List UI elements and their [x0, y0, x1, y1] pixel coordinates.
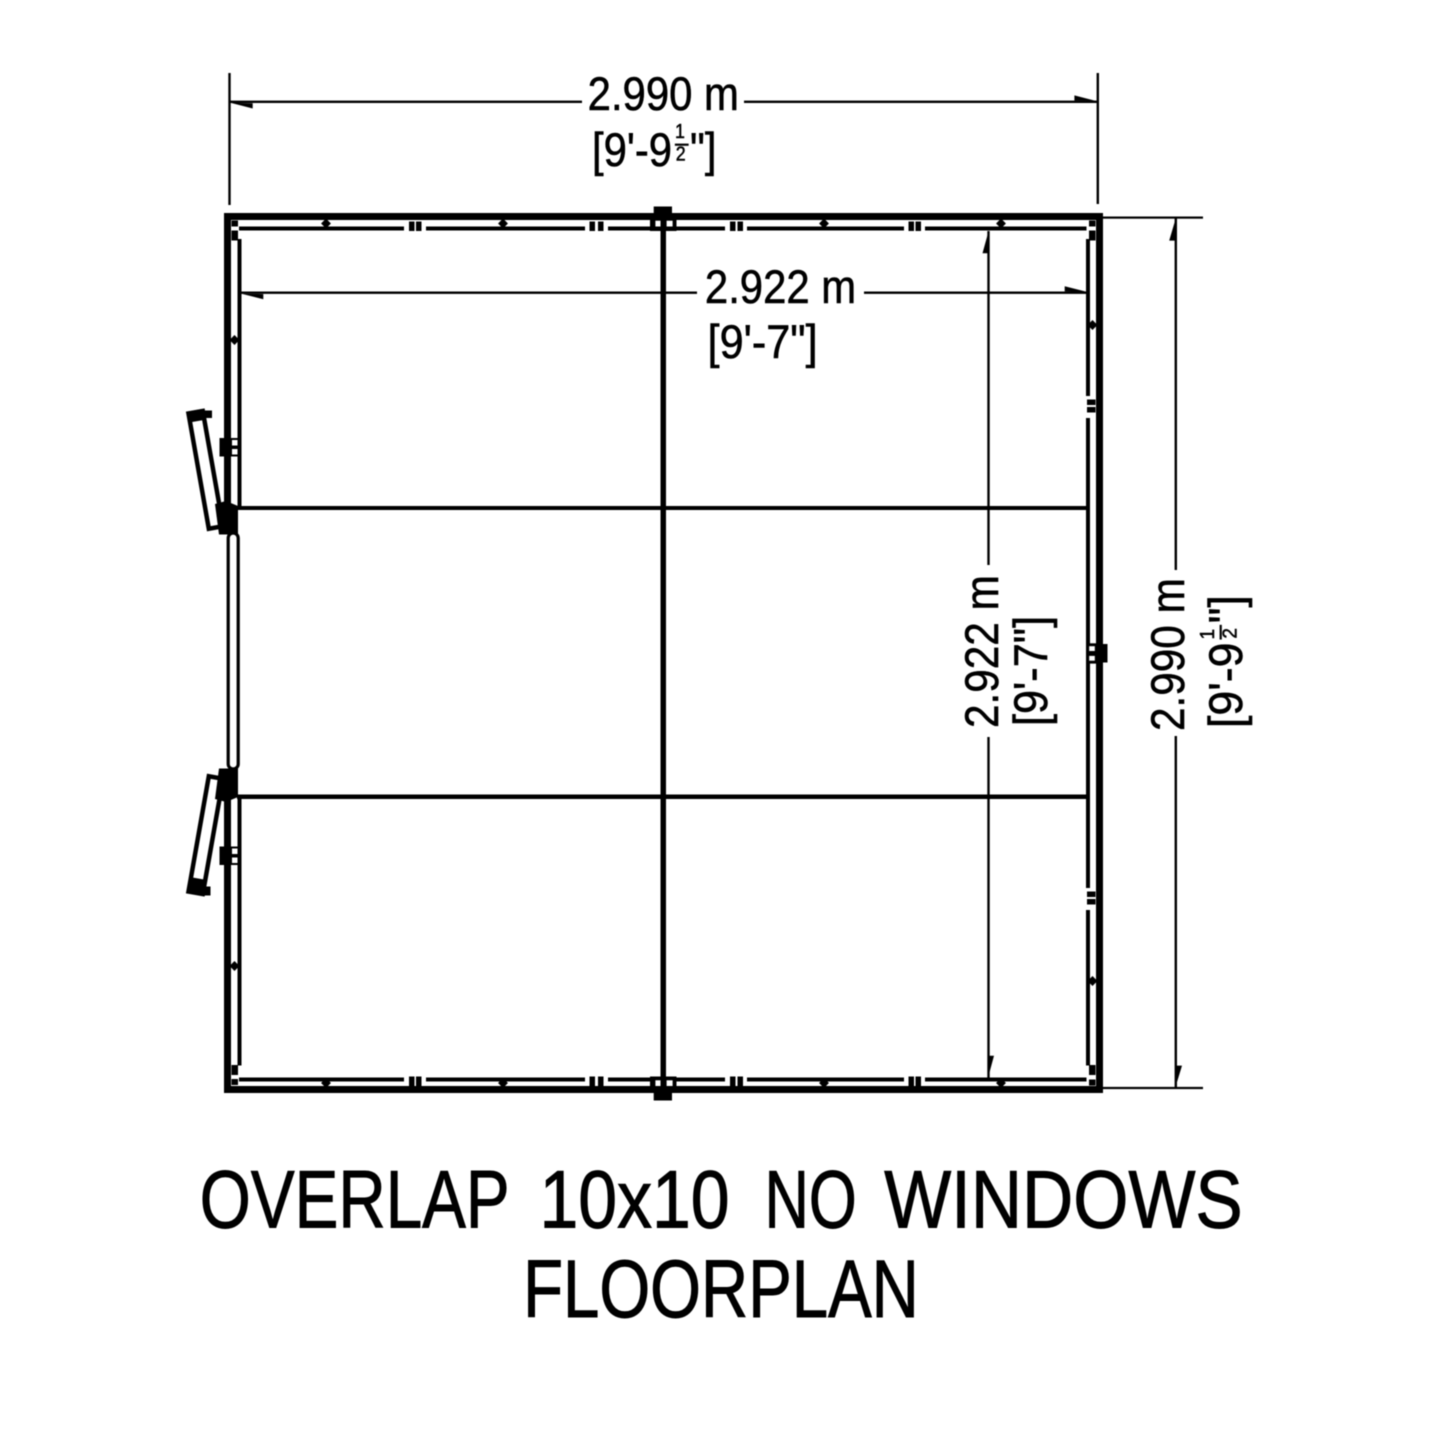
svg-text:FLOORPLAN: FLOORPLAN: [523, 1243, 919, 1335]
svg-text:[9'-9: [9'-9: [592, 125, 672, 177]
svg-text:[9'-7"]: [9'-7"]: [708, 315, 818, 368]
svg-text:1: 1: [1197, 629, 1220, 640]
svg-text:2.990 m: 2.990 m: [1143, 578, 1195, 731]
svg-text:2.990 m: 2.990 m: [588, 69, 739, 121]
svg-text:"]: "]: [1200, 595, 1252, 623]
svg-text:2: 2: [676, 143, 686, 165]
svg-text:NO: NO: [765, 1154, 857, 1246]
svg-text:2.922 m: 2.922 m: [957, 575, 1009, 728]
svg-text:1: 1: [675, 121, 685, 143]
svg-text:10x10: 10x10: [540, 1154, 730, 1246]
svg-text:[9'-9: [9'-9: [1200, 643, 1252, 728]
svg-text:OVERLAP: OVERLAP: [200, 1153, 510, 1245]
svg-text:"]: "]: [690, 125, 716, 177]
svg-text:2.922 m: 2.922 m: [705, 262, 856, 314]
svg-text:2: 2: [1219, 628, 1242, 639]
svg-text:WINDOWS: WINDOWS: [884, 1155, 1242, 1246]
svg-text:[9'-7"]: [9'-7"]: [1004, 616, 1057, 726]
